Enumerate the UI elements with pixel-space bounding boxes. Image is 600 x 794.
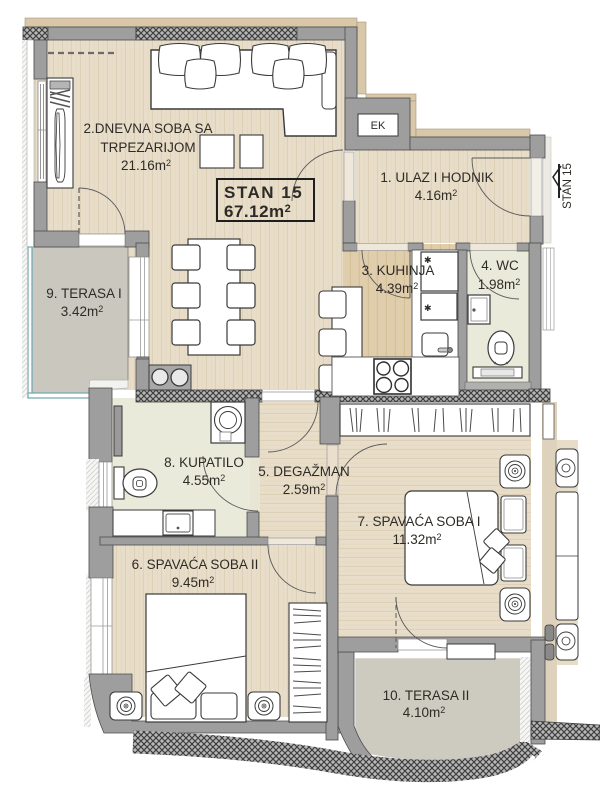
svg-text:4.39m2: 4.39m2 <box>376 281 419 296</box>
svg-text:5. DEGAŽMAN: 5. DEGAŽMAN <box>258 464 350 479</box>
svg-text:1. ULAZ I HODNIK: 1. ULAZ I HODNIK <box>380 170 493 185</box>
svg-text:4.16m2: 4.16m2 <box>415 188 458 203</box>
svg-text:4.55m2: 4.55m2 <box>183 473 226 488</box>
svg-text:9.45m2: 9.45m2 <box>172 575 215 590</box>
svg-text:EK: EK <box>371 120 386 132</box>
svg-text:67.12m2: 67.12m2 <box>224 202 291 221</box>
svg-text:9. TERASA I: 9. TERASA I <box>46 286 122 301</box>
svg-text:3. KUHINJA: 3. KUHINJA <box>362 263 435 278</box>
svg-text:STAN 15: STAN 15 <box>562 163 574 209</box>
svg-text:4. WC: 4. WC <box>481 258 519 273</box>
svg-text:10. TERASA II: 10. TERASA II <box>383 688 470 703</box>
svg-text:2.DNEVNA SOBA SA: 2.DNEVNA SOBA SA <box>83 121 212 136</box>
svg-text:11.32m2: 11.32m2 <box>392 532 441 547</box>
svg-text:✱: ✱ <box>424 303 432 313</box>
svg-text:3.42m2: 3.42m2 <box>61 304 104 319</box>
svg-text:STAN 15: STAN 15 <box>224 183 303 202</box>
svg-text:8. KUPATILO: 8. KUPATILO <box>164 455 244 470</box>
svg-text:21.16m2: 21.16m2 <box>121 158 171 173</box>
svg-text:TRPEZARIJOM: TRPEZARIJOM <box>100 140 195 155</box>
svg-text:6. SPAVAĆA SOBA II: 6. SPAVAĆA SOBA II <box>132 557 259 572</box>
svg-text:4.10m2: 4.10m2 <box>403 705 446 720</box>
svg-text:7. SPAVAĆA SOBA I: 7. SPAVAĆA SOBA I <box>357 514 480 529</box>
svg-text:1.98m2: 1.98m2 <box>478 277 521 292</box>
svg-text:2.59m2: 2.59m2 <box>283 482 326 497</box>
